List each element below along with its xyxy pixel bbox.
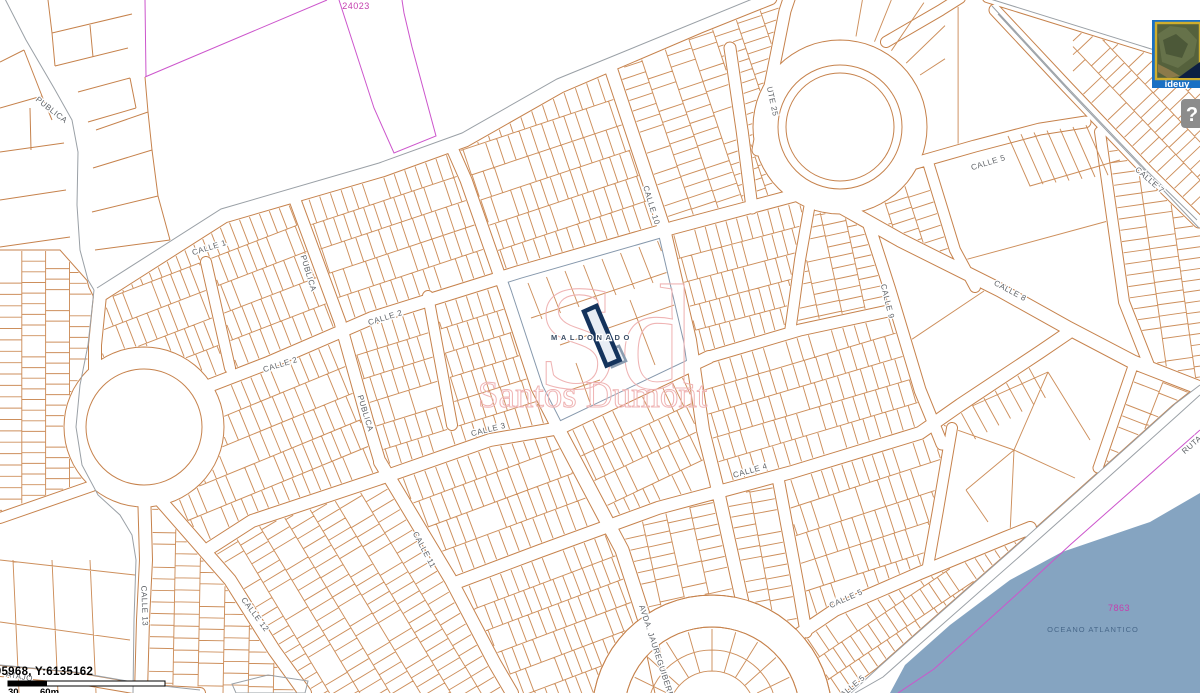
svg-text:7863: 7863 [1108, 603, 1130, 613]
svg-text:CALLE 13: CALLE 13 [139, 586, 149, 627]
svg-text:Santos Dumont: Santos Dumont [478, 375, 708, 416]
svg-text:?: ? [1186, 104, 1198, 126]
svg-text:60m: 60m [40, 687, 59, 693]
svg-text:X:695968, Y:6135162: X:695968, Y:6135162 [0, 666, 93, 678]
svg-text:MALDONADO: MALDONADO [551, 333, 633, 342]
svg-text:24023: 24023 [342, 1, 370, 11]
svg-text:ideuy: ideuy [1165, 79, 1191, 90]
svg-text:OCEANO ATLANTICO: OCEANO ATLANTICO [1047, 625, 1139, 634]
svg-text:30: 30 [8, 687, 19, 693]
